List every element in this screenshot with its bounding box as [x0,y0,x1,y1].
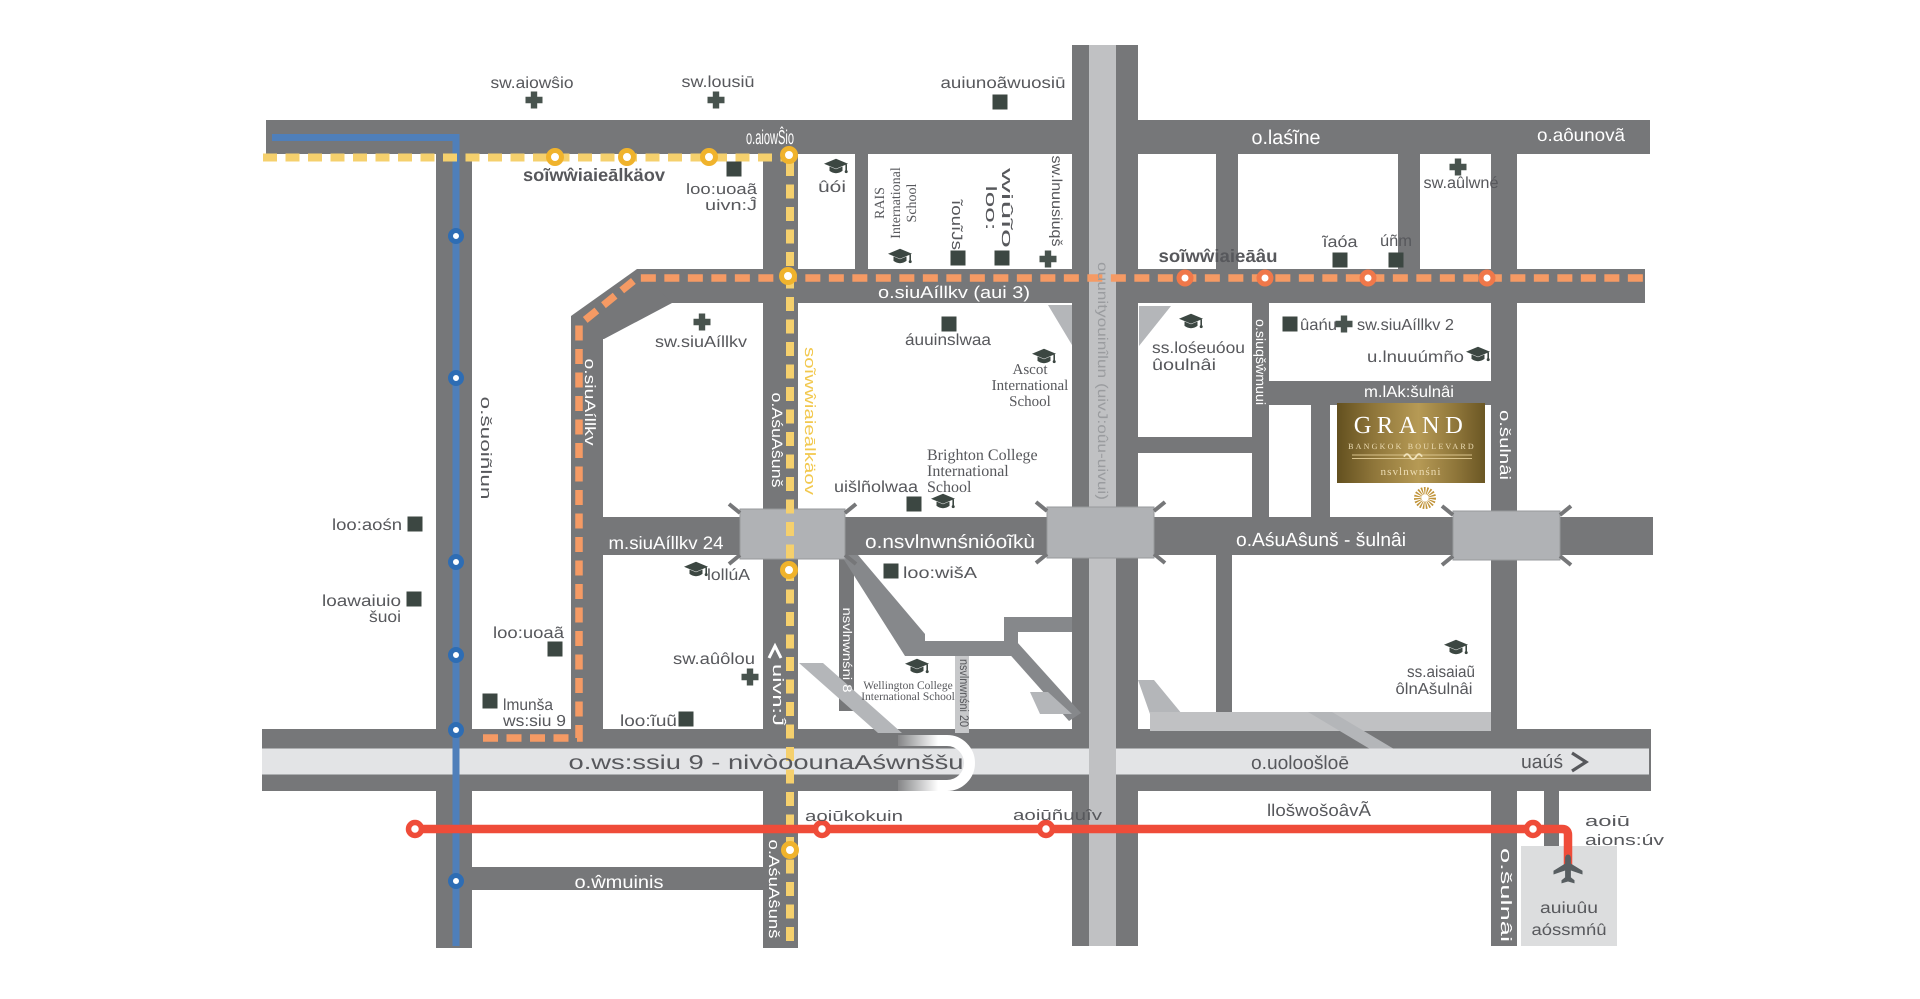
svg-text:o.aôunovã: o.aôunovã [1537,125,1626,145]
svg-text:o.siuAíllkv: o.siuAíllkv [581,359,598,447]
svg-text:o.nsvlnwnśnióoĩkù: o.nsvlnwnśnióoĩkù [865,532,1035,553]
svg-text:lollúA: lollúA [707,567,750,584]
svg-text:úñm: úñm [1380,233,1412,250]
svg-text:ouunityouinîlun (uivJ:oûu-uivu: ouunityouinîlun (uivJ:oûu-uivui) [1095,262,1111,500]
svg-text:loo:: loo: [982,186,999,231]
svg-text:o.šulnâi: o.šulnâi [1497,848,1514,942]
svg-text:wiûĩo: wiûĩo [998,166,1015,248]
svg-text:School: School [1009,394,1051,410]
svg-text:ĩaóa: ĩaóa [1321,234,1357,251]
svg-text:sw.lousiū: sw.lousiū [682,74,755,91]
svg-text:loawaiuio: loawaiuio [322,593,401,610]
svg-text:ôlnAšulnâi: ôlnAšulnâi [1396,681,1473,698]
svg-text:soĩwŵiaieālkäov: soĩwŵiaieālkäov [523,165,665,185]
svg-text:aoiū: aoiū [1585,813,1630,830]
svg-text:sw.siuAíllkv: sw.siuAíllkv [655,334,747,351]
svg-text:soĩwŵiaieāâu: soĩwŵiaieāâu [1159,246,1278,266]
svg-text:ws:siu 9: ws:siu 9 [502,713,566,730]
svg-text:m.siuAíllkv 24: m.siuAíllkv 24 [609,533,724,553]
svg-text:uivn:Ĵ: uivn:Ĵ [705,196,758,214]
svg-text:u.lnuuúmño: u.lnuuúmño [1367,349,1464,366]
svg-text:aóssmńû: aóssmńû [1532,922,1607,939]
svg-text:lmunša: lmunša [503,697,553,714]
svg-text:loo:ĩuũ: loo:ĩuũ [620,713,677,730]
svg-text:o.AśuAŝunš: o.AśuAŝunš [768,393,785,488]
svg-text:llošwošoâvÃ: llošwošoâvÃ [1267,801,1372,820]
svg-text:o.aiowŜio: o.aiowŜio [746,126,794,149]
svg-text:International: International [927,463,1009,480]
svg-text:sw.aiowŝio: sw.aiowŝio [491,75,574,92]
svg-text:International School: International School [861,691,955,703]
svg-text:nsvlnwnśni 20: nsvlnwnśni 20 [957,659,971,727]
svg-text:ss.aisaiaũ: ss.aisaiaũ [1407,664,1475,681]
svg-text:o.ŵmuinis: o.ŵmuinis [575,872,664,892]
svg-text:uivn:Ĵ: uivn:Ĵ [769,664,787,727]
svg-text:International: International [992,378,1069,394]
svg-text:o.ws:ssiu 9 - nivòoounaAśwnššu: o.ws:ssiu 9 - nivòoounaAśwnššu [569,752,964,774]
svg-text:o.siuAíllkv (aui 3): o.siuAíllkv (aui 3) [878,283,1030,302]
svg-text:nsvlnwnśni 8: nsvlnwnśni 8 [840,608,854,693]
svg-text:Ascot: Ascot [1013,362,1049,378]
svg-text:loo:uoaã: loo:uoaã [686,181,758,198]
svg-text:GRAND: GRAND [1354,412,1469,439]
svg-text:ûoulnâi: ûoulnâi [1152,357,1216,374]
svg-text:o.siuqšŵmuui: o.siuqšŵmuui [1253,319,1268,405]
svg-text:o.AśuAŝunš - šulnâi: o.AśuAŝunš - šulnâi [1236,530,1406,551]
svg-text:sw.aûôlou: sw.aûôlou [673,651,755,668]
svg-text:BANGKOK BOULEVARD: BANGKOK BOULEVARD [1348,442,1476,451]
svg-text:International: International [889,167,904,239]
svg-text:o.šulnâi: o.šulnâi [1496,410,1513,480]
svg-text:uišlñolwaa: uišlñolwaa [834,479,918,496]
svg-text:loo:aośn: loo:aośn [332,517,402,534]
svg-text:sw.lnuusiuqš: sw.lnuusiuqš [1048,156,1064,247]
svg-text:sw.siuAíllkv 2: sw.siuAíllkv 2 [1357,317,1454,334]
svg-text:School: School [905,183,920,222]
svg-text:ûói: ûói [818,179,846,196]
svg-text:šuoi: šuoi [369,609,401,626]
svg-text:m.lAk:šulnâi: m.lAk:šulnâi [1364,384,1454,401]
svg-text:aoiūkokuin: aoiūkokuin [805,808,903,825]
svg-text:aoiūñuuîv: aoiūñuuîv [1013,807,1103,824]
svg-text:RAIS: RAIS [873,187,888,219]
svg-text:aions:úv: aions:úv [1585,832,1665,849]
svg-text:sw.aûlwné: sw.aûlwné [1424,175,1499,192]
svg-text:auiuûu: auiuûu [1540,900,1598,917]
svg-text:áuuinslwaa: áuuinslwaa [905,332,991,349]
svg-text:loo:uoaã: loo:uoaã [493,625,564,642]
svg-text:ss.lośeuóou: ss.lośeuóou [1152,340,1245,357]
svg-text:loo:wišA: loo:wišA [903,565,977,582]
svg-text:o.uoloošloē: o.uoloošloē [1251,753,1349,774]
svg-text:ĩouĩJs: ĩouĩJs [948,199,965,250]
svg-text:o.šuoiñlun: o.šuoiñlun [477,397,494,500]
svg-text:Brighton College: Brighton College [927,447,1038,464]
svg-text:ûańu: ûańu [1300,317,1337,334]
svg-text:auiunoãwuosiū: auiunoãwuosiū [941,75,1066,92]
svg-text:School: School [927,479,972,496]
svg-text:uaúś: uaúś [1521,752,1563,773]
svg-text:o.AśuAŝunš: o.AśuAŝunš [765,840,782,939]
svg-text:o.laśĩne: o.laśĩne [1252,127,1321,149]
svg-text:soĩwŵiaieālkäov: soĩwŵiaieālkäov [801,347,818,496]
svg-text:nsvlnwnśni: nsvlnwnśni [1381,466,1442,478]
